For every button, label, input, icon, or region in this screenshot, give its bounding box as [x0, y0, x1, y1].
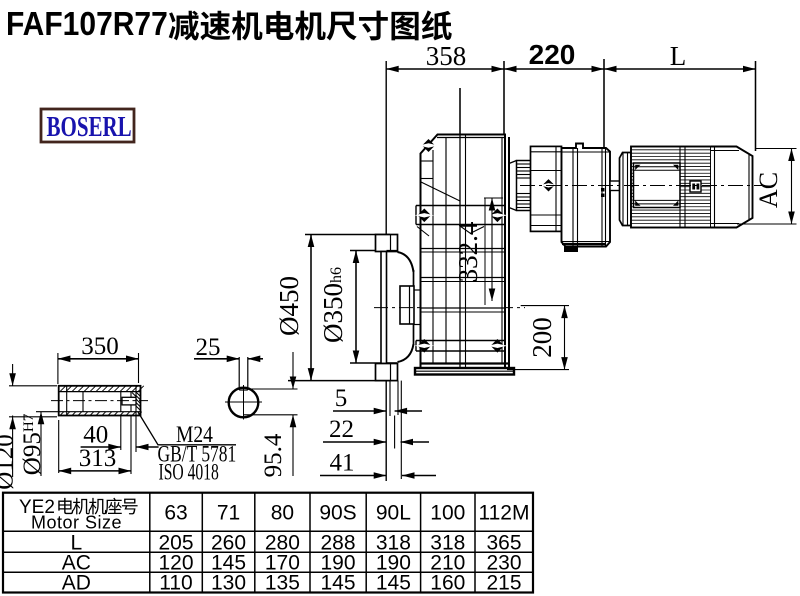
svg-text:200: 200	[527, 317, 557, 358]
svg-text:313: 313	[79, 445, 117, 472]
svg-text:25: 25	[196, 334, 221, 361]
svg-text:L: L	[670, 41, 687, 71]
svg-text:Motor Size: Motor Size	[31, 513, 122, 533]
svg-text:Ø350h6: Ø350h6	[318, 267, 348, 343]
svg-text:63: 63	[164, 502, 187, 525]
svg-text:110: 110	[159, 572, 192, 595]
svg-text:Ø450: Ø450	[274, 276, 304, 336]
svg-text:FAF107R77: FAF107R77	[6, 5, 168, 43]
svg-text:130: 130	[211, 572, 246, 595]
svg-text:ISO 4018: ISO 4018	[159, 460, 219, 486]
svg-text:Ø120: Ø120	[0, 434, 19, 490]
svg-text:220: 220	[529, 39, 576, 70]
svg-text:145: 145	[376, 572, 411, 595]
svg-text:80: 80	[271, 502, 294, 525]
svg-text:AD: AD	[62, 572, 91, 595]
svg-text:90S: 90S	[319, 502, 356, 525]
svg-text:41: 41	[330, 450, 355, 477]
svg-text:95.4: 95.4	[260, 433, 287, 477]
svg-text:215: 215	[486, 572, 521, 595]
svg-text:100: 100	[430, 502, 465, 525]
svg-text:358: 358	[426, 41, 467, 71]
svg-text:BOSERL: BOSERL	[47, 112, 132, 143]
svg-text:22: 22	[329, 416, 354, 443]
svg-text:350: 350	[81, 333, 119, 360]
svg-text:135: 135	[265, 572, 300, 595]
svg-text:71: 71	[217, 502, 240, 525]
svg-text:160: 160	[430, 572, 465, 595]
svg-text:90L: 90L	[376, 502, 411, 525]
svg-text:145: 145	[320, 572, 355, 595]
svg-text:332.4: 332.4	[453, 221, 483, 282]
svg-text:5: 5	[335, 385, 348, 412]
svg-text:AC: AC	[754, 172, 783, 208]
svg-text:112M: 112M	[479, 502, 530, 525]
